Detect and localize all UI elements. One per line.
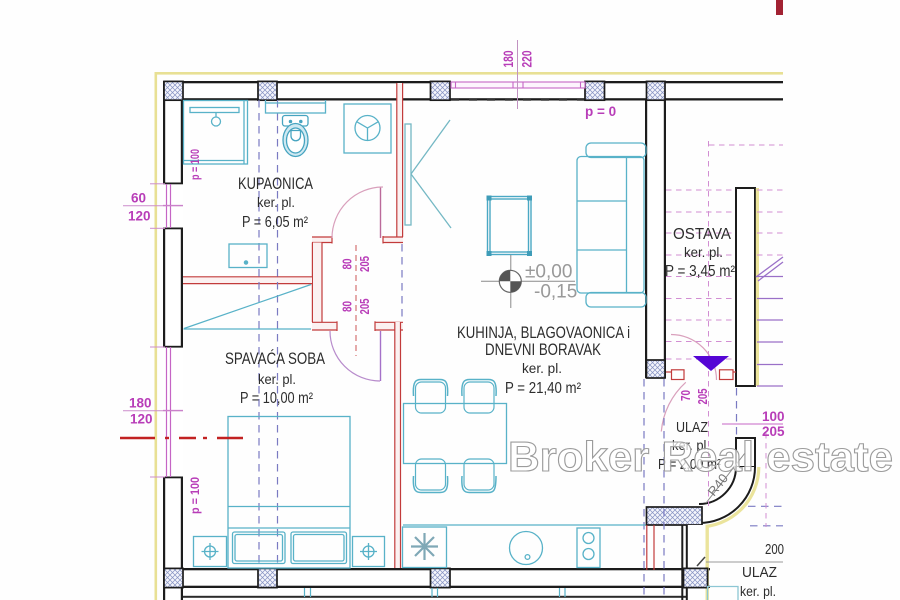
svg-text:p = 100: p = 100 bbox=[190, 149, 202, 180]
svg-text:Broker Real estate: Broker Real estate bbox=[508, 433, 893, 480]
svg-text:220: 220 bbox=[520, 51, 535, 68]
svg-text:80: 80 bbox=[341, 258, 355, 269]
svg-text:±0,00: ±0,00 bbox=[525, 262, 572, 283]
svg-text:ker. pl.: ker. pl. bbox=[258, 372, 296, 387]
svg-text:180: 180 bbox=[501, 51, 516, 68]
svg-text:P = 3,45 m²: P = 3,45 m² bbox=[665, 263, 735, 280]
svg-text:ker. pl.: ker. pl. bbox=[684, 245, 723, 260]
svg-text:ker. pl.: ker. pl. bbox=[257, 195, 295, 210]
svg-text:KUHINJA, BLAGOVAONICA i: KUHINJA, BLAGOVAONICA i bbox=[457, 324, 630, 342]
svg-text:ULAZ: ULAZ bbox=[742, 565, 777, 581]
svg-text:-0,15: -0,15 bbox=[534, 282, 577, 303]
svg-text:120: 120 bbox=[130, 412, 153, 427]
svg-text:OSTAVA: OSTAVA bbox=[673, 226, 731, 243]
svg-text:100: 100 bbox=[762, 409, 785, 424]
svg-text:p = 100: p = 100 bbox=[190, 477, 202, 514]
svg-text:205: 205 bbox=[696, 388, 710, 404]
svg-text:205: 205 bbox=[358, 298, 372, 314]
svg-text:205: 205 bbox=[358, 256, 372, 272]
svg-text:DNEVNI BORAVAK: DNEVNI BORAVAK bbox=[485, 341, 601, 359]
svg-text:60: 60 bbox=[131, 191, 146, 206]
svg-text:120: 120 bbox=[128, 209, 151, 224]
svg-text:KUPAONICA: KUPAONICA bbox=[238, 175, 313, 193]
svg-text:180: 180 bbox=[129, 396, 152, 411]
svg-text:SPAVAĆA SOBA: SPAVAĆA SOBA bbox=[225, 349, 325, 368]
svg-text:70: 70 bbox=[679, 390, 693, 401]
svg-text:P = 6,05 m²: P = 6,05 m² bbox=[242, 214, 308, 231]
svg-text:P = 10,00 m²: P = 10,00 m² bbox=[240, 390, 313, 407]
svg-text:80: 80 bbox=[341, 301, 355, 312]
svg-text:P = 21,40 m²: P = 21,40 m² bbox=[505, 380, 581, 397]
svg-text:ker. pl.: ker. pl. bbox=[522, 361, 562, 376]
svg-text:200: 200 bbox=[765, 542, 784, 558]
svg-text:ker. pl.: ker. pl. bbox=[740, 584, 776, 599]
svg-text:p = 0: p = 0 bbox=[585, 104, 616, 119]
